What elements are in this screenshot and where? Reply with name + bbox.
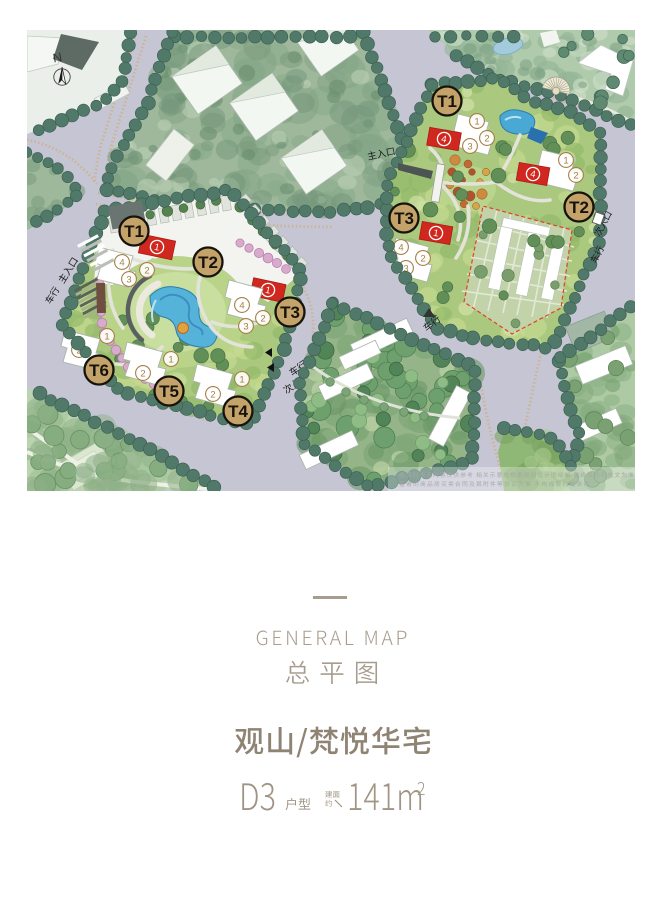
svg-text:3: 3 — [126, 274, 131, 285]
svg-text:T6: T6 — [89, 361, 109, 380]
svg-text:1: 1 — [474, 116, 479, 127]
svg-text:4: 4 — [398, 242, 403, 253]
svg-text:2: 2 — [420, 253, 425, 264]
svg-text:1: 1 — [168, 354, 173, 365]
svg-text:2: 2 — [484, 133, 489, 144]
svg-text:4: 4 — [119, 257, 124, 268]
svg-text:2: 2 — [210, 389, 215, 400]
svg-text:3: 3 — [243, 321, 248, 332]
svg-text:2: 2 — [140, 368, 145, 379]
svg-text:1: 1 — [104, 331, 109, 342]
svg-text:T3: T3 — [394, 209, 414, 228]
svg-text:1: 1 — [239, 374, 244, 385]
svg-text:2: 2 — [144, 265, 149, 276]
svg-text:T4: T4 — [228, 402, 248, 421]
svg-text:T2: T2 — [198, 253, 218, 272]
svg-text:4: 4 — [239, 300, 244, 311]
svg-text:T3: T3 — [280, 303, 300, 322]
svg-text:2: 2 — [260, 313, 265, 324]
svg-text:T2: T2 — [569, 198, 589, 217]
svg-text:3: 3 — [467, 141, 472, 152]
svg-text:T1: T1 — [124, 222, 144, 241]
svg-text:T1: T1 — [437, 92, 457, 111]
svg-text:1: 1 — [563, 155, 568, 166]
svg-text:T5: T5 — [159, 382, 179, 401]
svg-text:2: 2 — [573, 170, 578, 181]
